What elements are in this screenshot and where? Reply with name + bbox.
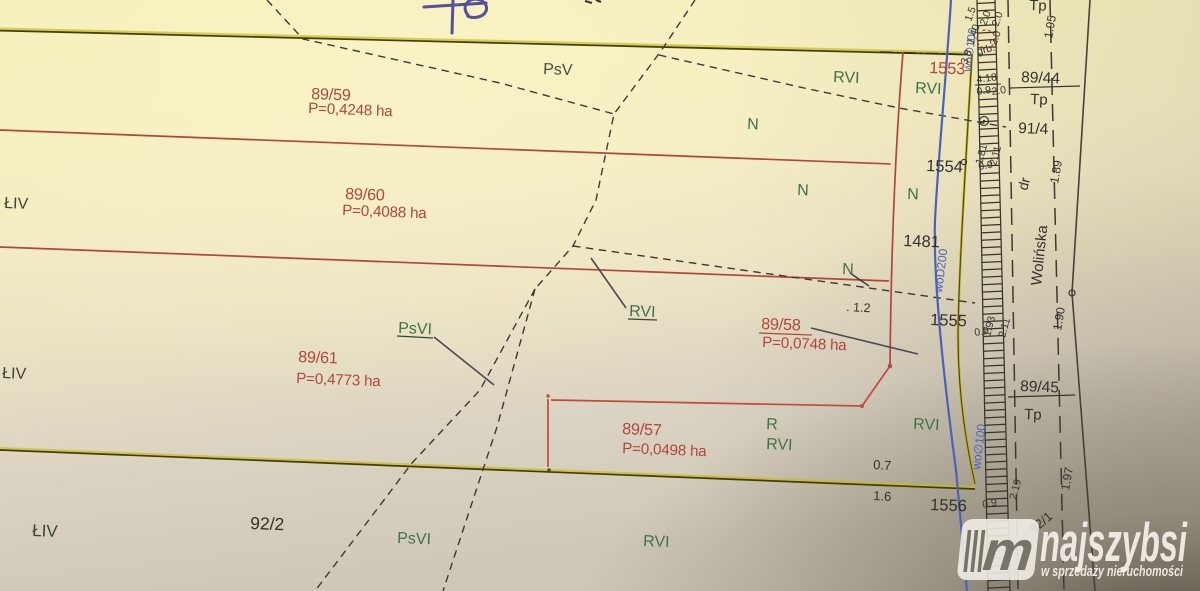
svg-text:RVI: RVI — [913, 416, 940, 434]
svg-text:0.9: 0.9 — [977, 159, 994, 173]
svg-text:89/57: 89/57 — [622, 420, 662, 440]
svg-text:P=0,4248 ha: P=0,4248 ha — [308, 100, 394, 120]
svg-text:89/44: 89/44 — [1021, 69, 1061, 87]
svg-text:. 1.2: . 1.2 — [846, 300, 871, 315]
svg-text:RVI: RVI — [629, 303, 656, 321]
svg-text:89/58: 89/58 — [761, 315, 801, 335]
svg-text:PsV: PsV — [543, 61, 573, 79]
svg-text:RVI: RVI — [915, 80, 942, 98]
svg-text:N: N — [747, 116, 759, 133]
svg-text:P=0,0498 ha: P=0,0498 ha — [622, 440, 708, 460]
svg-text:N: N — [797, 182, 809, 199]
svg-text:Tp: Tp — [1030, 91, 1048, 109]
svg-text:R: R — [766, 416, 778, 433]
svg-text:N: N — [842, 261, 854, 278]
svg-text:0.9: 0.9 — [973, 325, 990, 339]
svg-text:1481: 1481 — [903, 232, 940, 251]
svg-text:0.9: 0.9 — [981, 497, 998, 511]
svg-text:0.7: 0.7 — [873, 457, 892, 473]
svg-text:1555: 1555 — [930, 311, 967, 330]
svg-text:P=0,4088 ha: P=0,4088 ha — [342, 202, 428, 222]
svg-text:89/61: 89/61 — [298, 348, 338, 368]
svg-text:N: N — [907, 186, 919, 203]
svg-text:RVI: RVI — [766, 436, 793, 454]
svg-text:m: m — [980, 519, 1036, 582]
svg-text:89/45: 89/45 — [1020, 378, 1059, 396]
svg-text:RVI: RVI — [643, 533, 670, 551]
svg-text:2.0: 2.0 — [991, 84, 1007, 98]
svg-text:92/2: 92/2 — [250, 513, 285, 534]
svg-text:1556: 1556 — [930, 496, 967, 515]
svg-text:Tp: Tp — [1024, 406, 1042, 424]
svg-text:P=0,4773 ha: P=0,4773 ha — [296, 370, 382, 390]
svg-text:1554: 1554 — [926, 157, 963, 176]
svg-text:RVI: RVI — [833, 69, 860, 87]
svg-text:Tp: Tp — [1029, 0, 1047, 15]
svg-text:ŁIV: ŁIV — [4, 195, 29, 213]
svg-text:91/4: 91/4 — [1018, 120, 1049, 138]
svg-text:1.6: 1.6 — [873, 488, 892, 504]
svg-text:P=0,0748 ha: P=0,0748 ha — [762, 334, 848, 354]
svg-text:PsVI: PsVI — [398, 320, 432, 338]
svg-text:ŁIV: ŁIV — [2, 365, 27, 383]
svg-text:PsVI: PsVI — [397, 530, 431, 548]
svg-text:w sprzedaży nieruchomości: w sprzedaży nieruchomości — [1041, 564, 1184, 580]
svg-text:0.9: 0.9 — [976, 84, 992, 98]
svg-text:ŁIV: ŁIV — [32, 521, 59, 541]
